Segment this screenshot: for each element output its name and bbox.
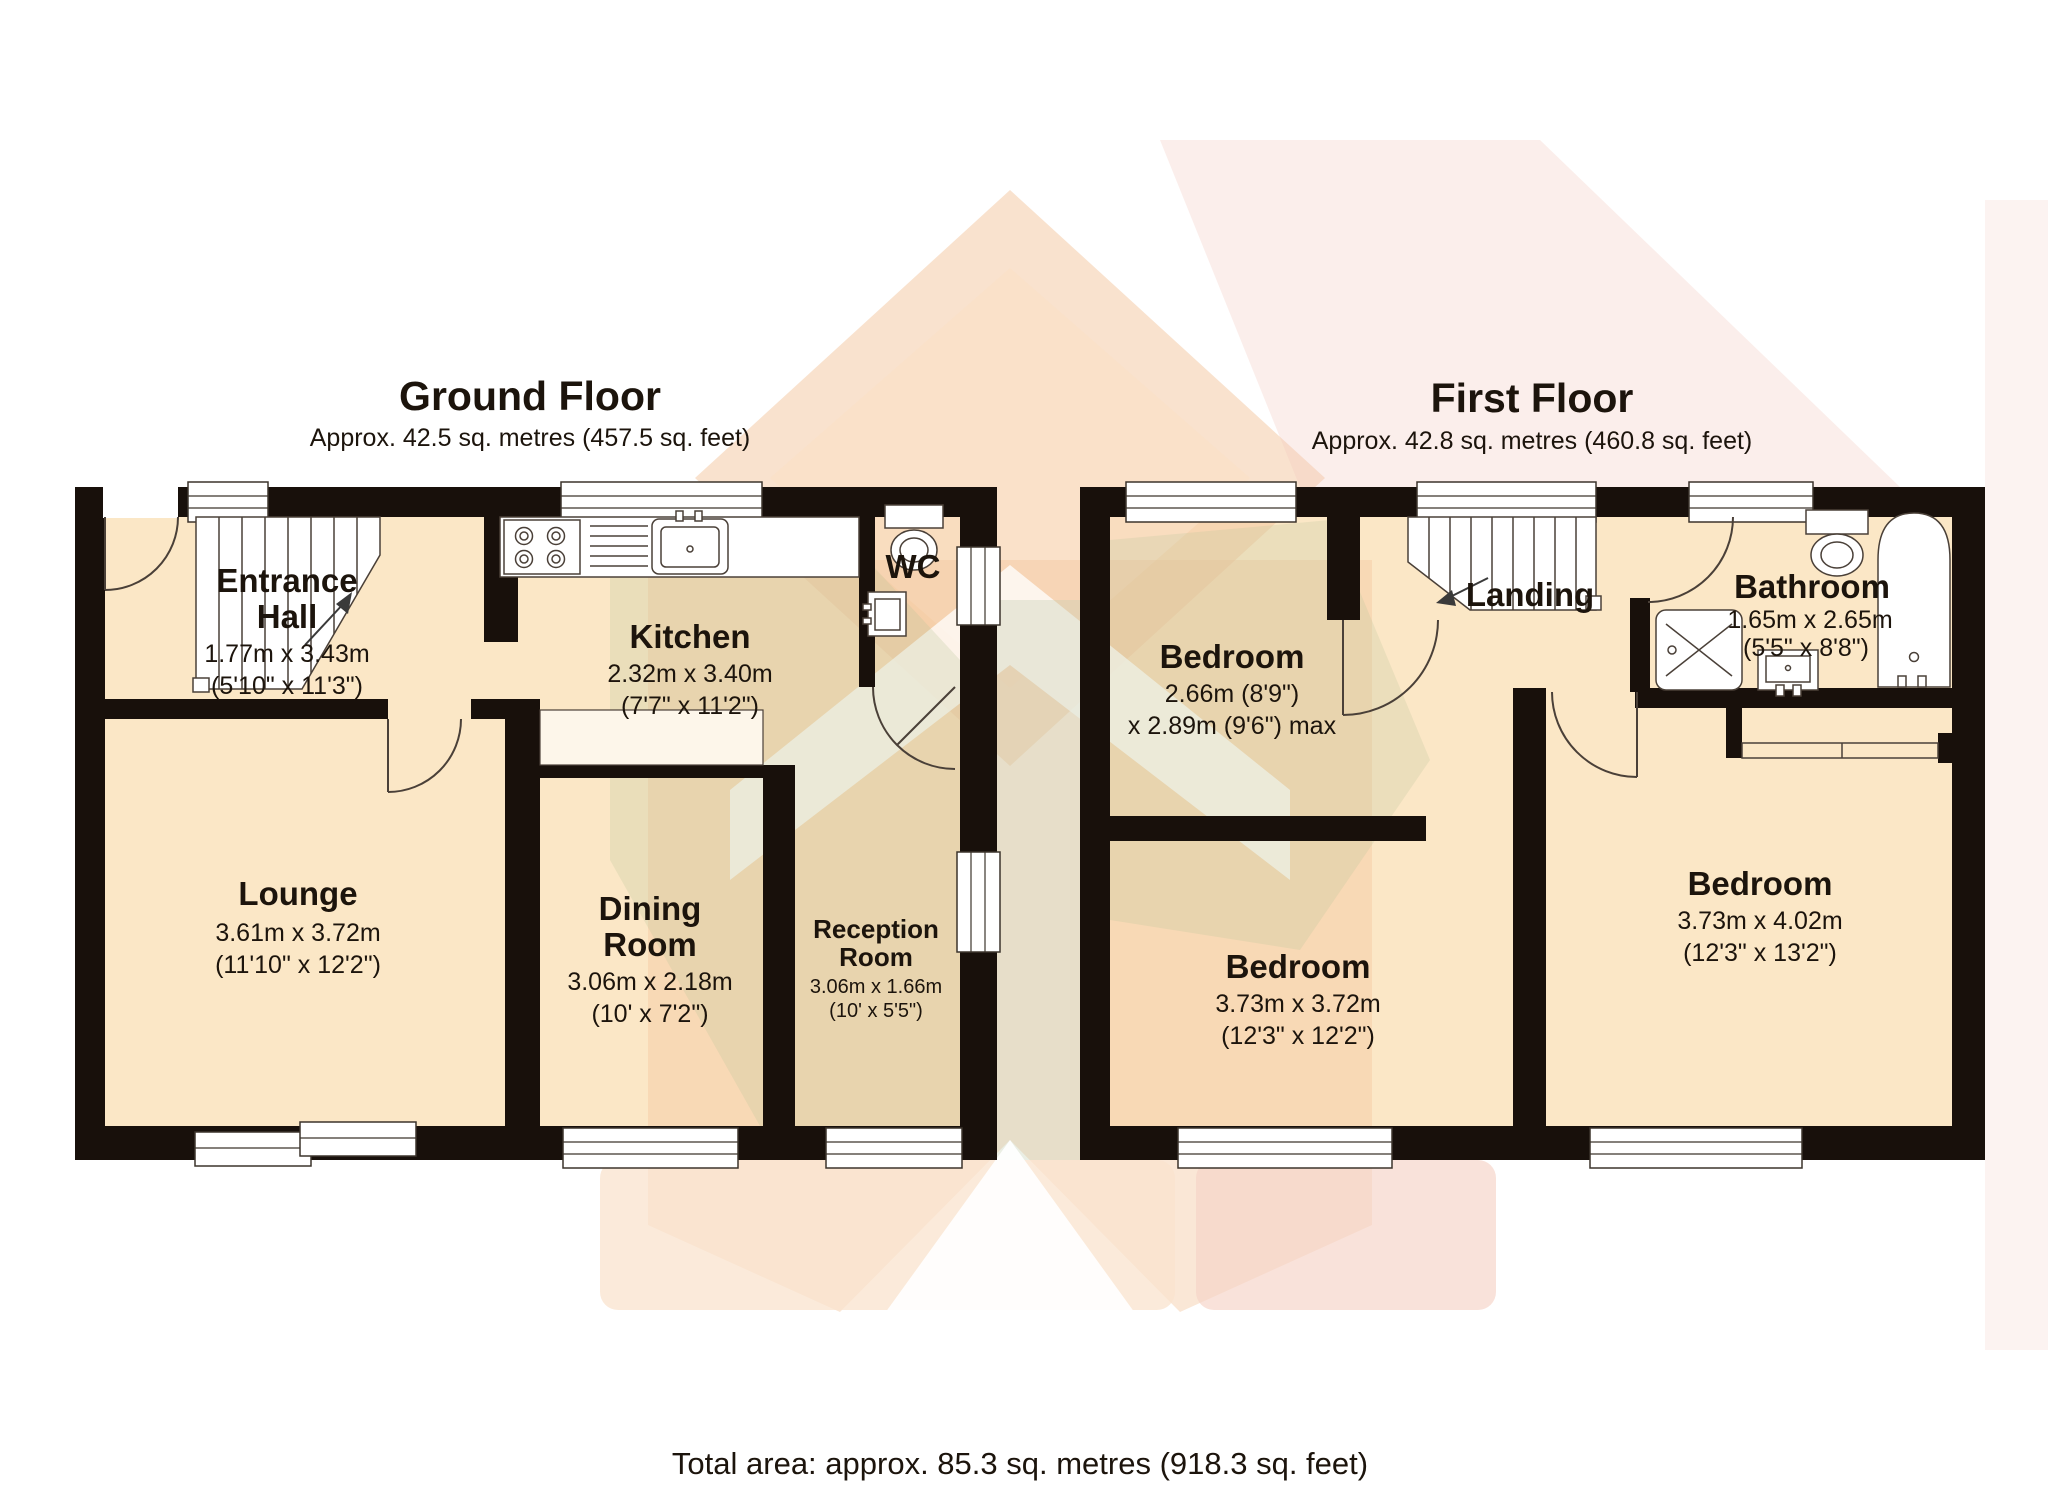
bedroom-back-right-dims-imperial: (12'3" x 13'2") xyxy=(1683,939,1837,967)
reception-dims-metric: 3.06m x 1.66m xyxy=(810,976,942,998)
reception-side-window xyxy=(957,852,1000,952)
entrance-hall-label2: Hall xyxy=(257,598,318,635)
kitchen-dims-imperial: (7'7" x 11'2") xyxy=(621,692,759,720)
lounge-dims-imperial: (11'10" x 12'2") xyxy=(215,951,381,979)
ground-floor-title: Ground Floor xyxy=(399,373,661,419)
bedroom-front-dims-imperial: x 2.89m (9'6") max xyxy=(1128,712,1337,740)
reception-label: Reception xyxy=(813,914,939,944)
dining-label: Dining xyxy=(599,890,702,927)
bedroom-front-window xyxy=(1126,482,1296,522)
kitchen-window xyxy=(561,482,762,522)
kitchen-label: Kitchen xyxy=(629,618,750,655)
bedroom-back-left-label: Bedroom xyxy=(1226,948,1371,985)
bedroom-back-left-dims-imperial: (12'3" x 12'2") xyxy=(1221,1022,1375,1050)
bedroom-back-right-label: Bedroom xyxy=(1688,865,1833,902)
toilet-icon xyxy=(1806,510,1868,576)
bedroom-front-dims-metric: 2.66m (8'9") xyxy=(1165,680,1300,708)
lounge-label: Lounge xyxy=(238,875,357,912)
stair-newel xyxy=(193,678,209,692)
bedroom-back-right-dims-metric: 3.73m x 4.02m xyxy=(1677,907,1842,935)
floorplan-page: Ground Floor Approx. 42.5 sq. metres (45… xyxy=(0,0,2048,1489)
ground-floor-subtitle: Approx. 42.5 sq. metres (457.5 sq. feet) xyxy=(310,424,751,452)
reception-dims-imperial: (10' x 5'5") xyxy=(829,1000,923,1022)
wc-label: WC xyxy=(886,548,941,585)
floorplan-drawing: Ground Floor Approx. 42.5 sq. metres (45… xyxy=(0,0,2048,1489)
entrance-hall-label: Entrance xyxy=(216,562,357,599)
kitchen-sink-icon xyxy=(652,511,728,574)
wc-basin-icon xyxy=(863,592,906,636)
bathroom-dims-metric: 1.65m x 2.65m xyxy=(1727,606,1892,634)
bedroom-front-label: Bedroom xyxy=(1160,638,1305,675)
dining-dims-metric: 3.06m x 2.18m xyxy=(567,968,732,996)
entrance-hall-dims-metric: 1.77m x 3.43m xyxy=(204,640,369,668)
front-door-opening xyxy=(103,486,178,518)
landing-label: Landing xyxy=(1466,576,1594,613)
bedroom-back-left-window xyxy=(1178,1128,1392,1168)
bathroom-window xyxy=(1689,482,1813,522)
stove-icon xyxy=(504,520,580,574)
reception-label2: Room xyxy=(839,942,913,972)
landing-window xyxy=(1417,482,1596,522)
first-floor-title: First Floor xyxy=(1431,375,1634,421)
total-area-text: Total area: approx. 85.3 sq. metres (918… xyxy=(672,1446,1368,1481)
bathroom-label: Bathroom xyxy=(1734,568,1890,605)
kitchen-dims-metric: 2.32m x 3.40m xyxy=(607,660,772,688)
first-floor-subtitle: Approx. 42.8 sq. metres (460.8 sq. feet) xyxy=(1312,427,1753,455)
bathroom-dims-imperial: (5'5" x 8'8") xyxy=(1743,634,1869,662)
wc-window xyxy=(957,547,1000,625)
kitchen-fixtures xyxy=(500,511,859,577)
dining-dims-imperial: (10' x 7'2") xyxy=(591,1000,708,1028)
dining-label2: Room xyxy=(603,926,697,963)
dining-window xyxy=(563,1128,738,1168)
hall-window xyxy=(188,482,268,522)
bedroom-back-right-window xyxy=(1590,1128,1802,1168)
lounge-dims-metric: 3.61m x 3.72m xyxy=(215,919,380,947)
entrance-hall-dims-imperial: (5'10" x 11'3") xyxy=(211,672,363,700)
reception-window xyxy=(826,1128,962,1168)
bedroom-back-left-dims-metric: 3.73m x 3.72m xyxy=(1215,990,1380,1018)
